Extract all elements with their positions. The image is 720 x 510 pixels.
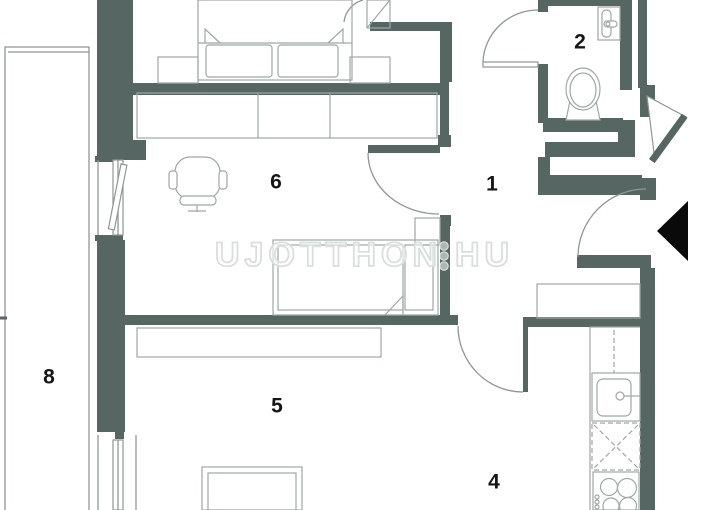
door-leaf	[483, 62, 538, 67]
office-chair	[169, 157, 227, 212]
door-room5	[458, 325, 528, 392]
sideboard	[137, 328, 381, 357]
burner	[618, 479, 637, 498]
faucet	[616, 392, 624, 400]
door-top-bedroom	[344, 0, 363, 22]
single-bed-room6	[273, 240, 438, 315]
room-label-1: 1	[486, 174, 498, 195]
burner	[601, 479, 618, 496]
nightstand-left	[158, 57, 198, 83]
door-swing-area	[647, 96, 686, 161]
floor-plan-drawing	[0, 0, 720, 510]
door-leaf	[523, 325, 528, 392]
bedside-table	[415, 218, 440, 245]
kitchen-counter	[590, 327, 640, 510]
wardrobe-room6	[137, 93, 437, 138]
door-hallway	[578, 189, 646, 257]
bathroom-sink	[598, 7, 620, 40]
kitchen-sink	[592, 373, 640, 421]
door-bathroom	[483, 10, 538, 67]
door-leaf	[368, 145, 440, 153]
table-room5	[202, 467, 302, 510]
nightstand-right	[350, 57, 390, 83]
entrance-door	[647, 96, 688, 163]
entrance-arrow-icon	[657, 201, 688, 261]
knob	[595, 495, 599, 499]
pillow	[278, 45, 338, 77]
room-label-2: 2	[574, 32, 586, 53]
door-room6	[368, 145, 440, 214]
toilet-bowl	[566, 68, 600, 110]
burner	[620, 498, 637, 510]
floor-plan	[0, 0, 720, 510]
armrest	[169, 171, 177, 189]
chair-back	[180, 196, 216, 205]
double-bed	[198, 0, 352, 80]
stove	[593, 472, 639, 510]
room-label-6: 6	[270, 172, 282, 193]
knob	[595, 500, 599, 504]
knob	[595, 505, 599, 509]
room-label-8: 8	[43, 367, 55, 388]
toilet	[566, 68, 600, 120]
armrest	[219, 171, 227, 189]
hall-closet	[537, 284, 640, 318]
burner	[603, 498, 619, 510]
kitchen-unit-x	[592, 423, 640, 470]
window-upper	[98, 160, 127, 235]
room-label-4: 4	[488, 472, 500, 493]
pillow	[206, 45, 272, 77]
window-lower	[98, 435, 136, 510]
room-label-5: 5	[271, 396, 283, 417]
balcony-railing	[0, 47, 89, 510]
pillow	[405, 245, 433, 310]
